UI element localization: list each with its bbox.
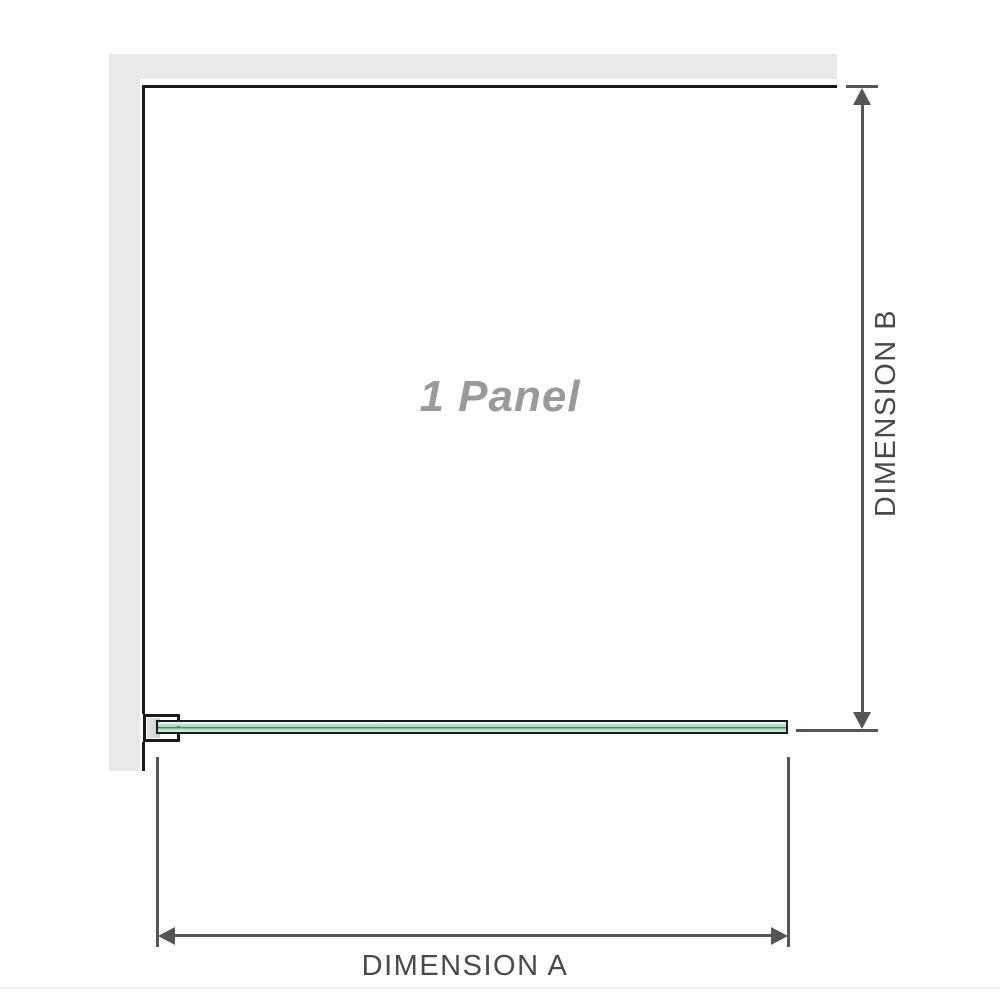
- dimension-b-label: DIMENSION B: [869, 278, 903, 548]
- dimension-a-line: [171, 934, 776, 937]
- arrow-up-icon: [853, 88, 871, 105]
- image-bottom-hairline: [0, 987, 1000, 989]
- panel-outline-left-upper: [142, 85, 145, 714]
- arrow-left-icon: [158, 927, 175, 945]
- dimension-a-extension-right: [787, 757, 790, 947]
- shower-panel-diagram: 1 Panel DIMENSION B DIMENSION A: [0, 0, 1000, 1000]
- arrow-right-icon: [771, 927, 788, 945]
- dimension-a-extension-left: [156, 757, 159, 947]
- dimension-b-tick-bottom: [796, 729, 878, 732]
- panel-outline-top: [143, 85, 837, 88]
- wall-left: [109, 54, 140, 771]
- panel-outline-left-lower: [142, 742, 145, 771]
- glass-panel-plan: [156, 720, 788, 734]
- wall-top: [109, 54, 837, 79]
- arrow-down-icon: [853, 712, 871, 729]
- panel-label: 1 Panel: [385, 372, 615, 422]
- dimension-b-line: [861, 98, 864, 718]
- dimension-a-label: DIMENSION A: [315, 949, 615, 983]
